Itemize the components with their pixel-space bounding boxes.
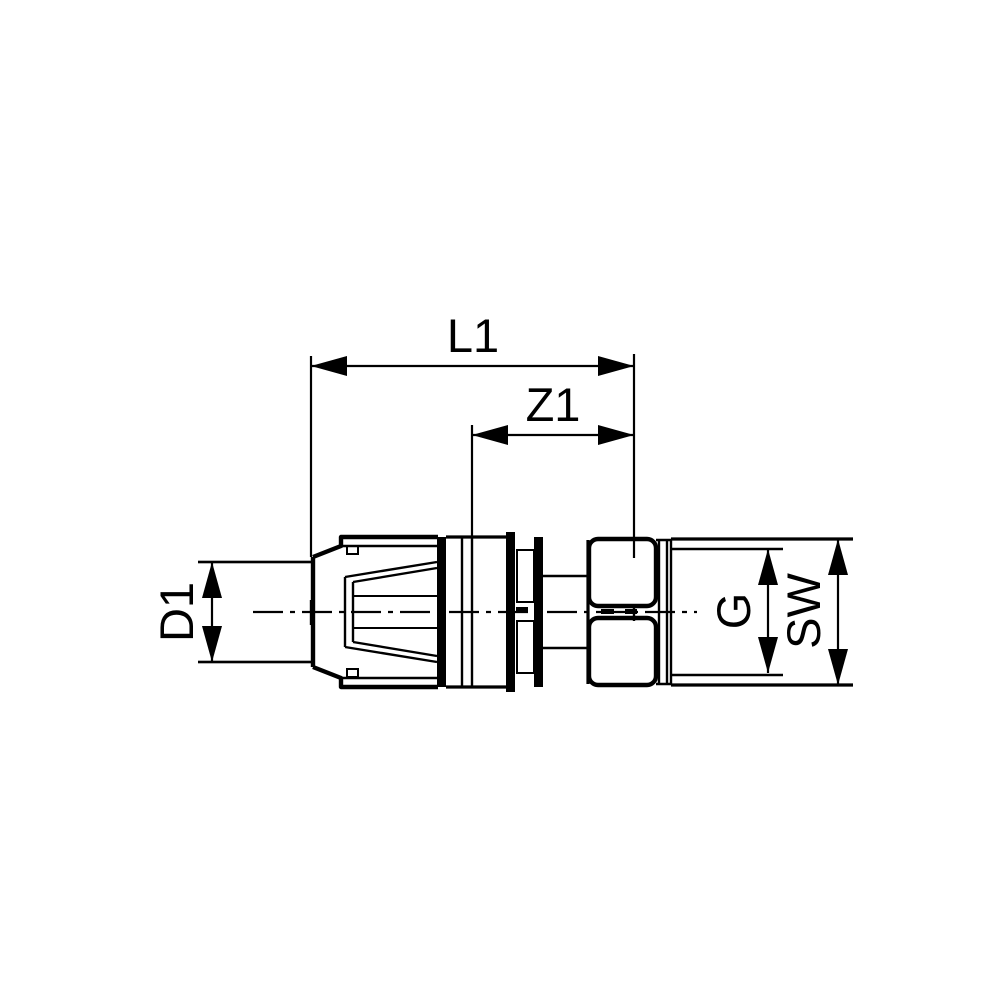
nut-thread-mark-2 [625, 609, 637, 614]
flange-band-left [506, 532, 515, 692]
sw-label: SW [777, 573, 830, 649]
dim-g: G [707, 549, 778, 673]
flange-tab-bottom [517, 621, 534, 673]
nut-thread-mark-1 [601, 609, 614, 614]
fitting-collar [437, 537, 506, 687]
l1-arrow-right [598, 356, 634, 376]
flange-ribs [506, 532, 543, 692]
sw-arrow-bottom [828, 649, 848, 685]
fitting-technical-drawing: L1 Z1 D1 G SW [0, 0, 1000, 1000]
dim-sw: SW [777, 539, 848, 685]
dim-d1: D1 [150, 562, 313, 662]
d1-arrow-top [202, 562, 222, 598]
sleeve-clip-window-bottom [347, 669, 358, 677]
g-arrow-bottom [758, 637, 778, 673]
collar-rib-band [437, 537, 446, 687]
l1-label: L1 [447, 309, 499, 362]
g-arrow-top [758, 549, 778, 585]
flange-band-right [534, 537, 543, 687]
sw-arrow-top [828, 539, 848, 575]
d1-arrow-bottom [202, 626, 222, 662]
drawing-page: L1 Z1 D1 G SW [0, 0, 1000, 1000]
nut-upper-half [589, 539, 656, 606]
nut-lower-half [589, 618, 656, 685]
l1-arrow-left [311, 356, 347, 376]
d1-label: D1 [150, 582, 203, 642]
flange-tab-top [517, 550, 534, 602]
z1-arrow-right [598, 425, 634, 445]
dim-z1: Z1 [472, 378, 634, 537]
flange-thread-mark [516, 607, 528, 612]
z1-arrow-left [472, 425, 508, 445]
z1-label: Z1 [526, 378, 581, 431]
g-label: G [707, 593, 760, 630]
